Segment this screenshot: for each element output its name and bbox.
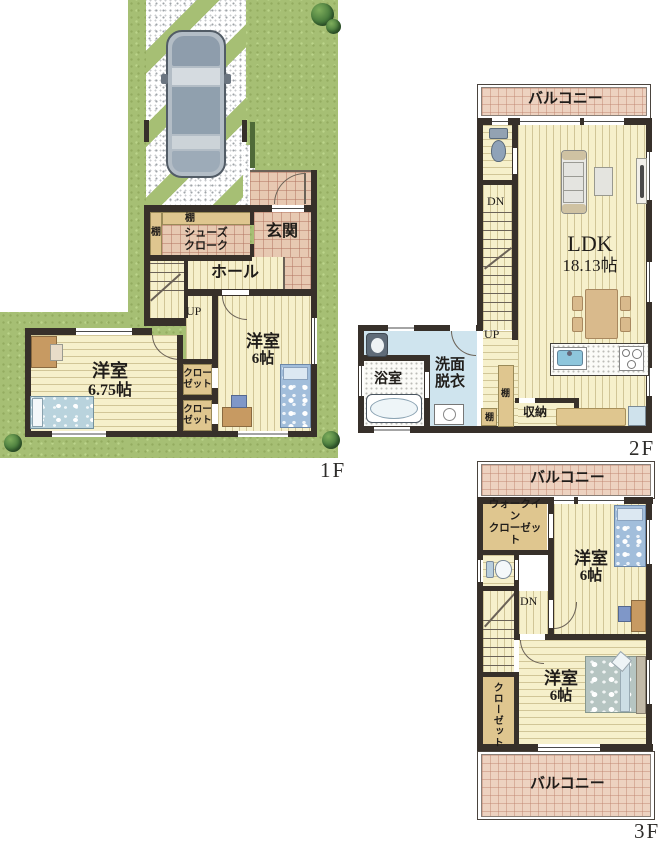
toilet-bowl <box>495 560 512 579</box>
wic-door-gap <box>549 514 553 538</box>
window <box>647 660 652 704</box>
window <box>554 497 574 504</box>
balcony-door <box>538 744 600 751</box>
window <box>647 520 652 564</box>
bedroom-3f-a-label: 洋室 6帖 <box>558 546 624 588</box>
floorplan-canvas: 棚 棚 シューズ クローク 玄関 ホール UP 洋室 6.75帖 洋室 6帖 ク… <box>0 0 660 843</box>
wall <box>477 497 483 751</box>
headboard-cabinet <box>636 656 646 714</box>
wic-label: ウォークイン クローゼット <box>484 509 546 537</box>
stairs-3f-steps <box>483 620 514 672</box>
bedroom-3f-b-label: 洋室 6帖 <box>528 666 594 708</box>
floor-label-3f: 3F <box>634 819 660 843</box>
balcony-door <box>578 497 624 504</box>
balcony-3f-bottom-label: バルコニー <box>530 776 605 793</box>
wall <box>514 672 519 744</box>
pillow <box>617 508 643 521</box>
balcony-3f-top-label: バルコニー <box>530 470 605 487</box>
dn-label: DN <box>520 595 537 608</box>
bedroom-a-door-gap <box>549 600 553 628</box>
wall <box>514 591 519 640</box>
window <box>478 560 483 582</box>
toilet-3f-door-gap <box>515 560 518 580</box>
wall <box>477 672 519 677</box>
chair <box>618 606 631 622</box>
toilet-tank <box>486 561 494 578</box>
desk <box>631 600 646 632</box>
floor-3f: バルコニー <box>0 0 660 843</box>
closet-3f-label: クローゼット <box>491 682 502 748</box>
